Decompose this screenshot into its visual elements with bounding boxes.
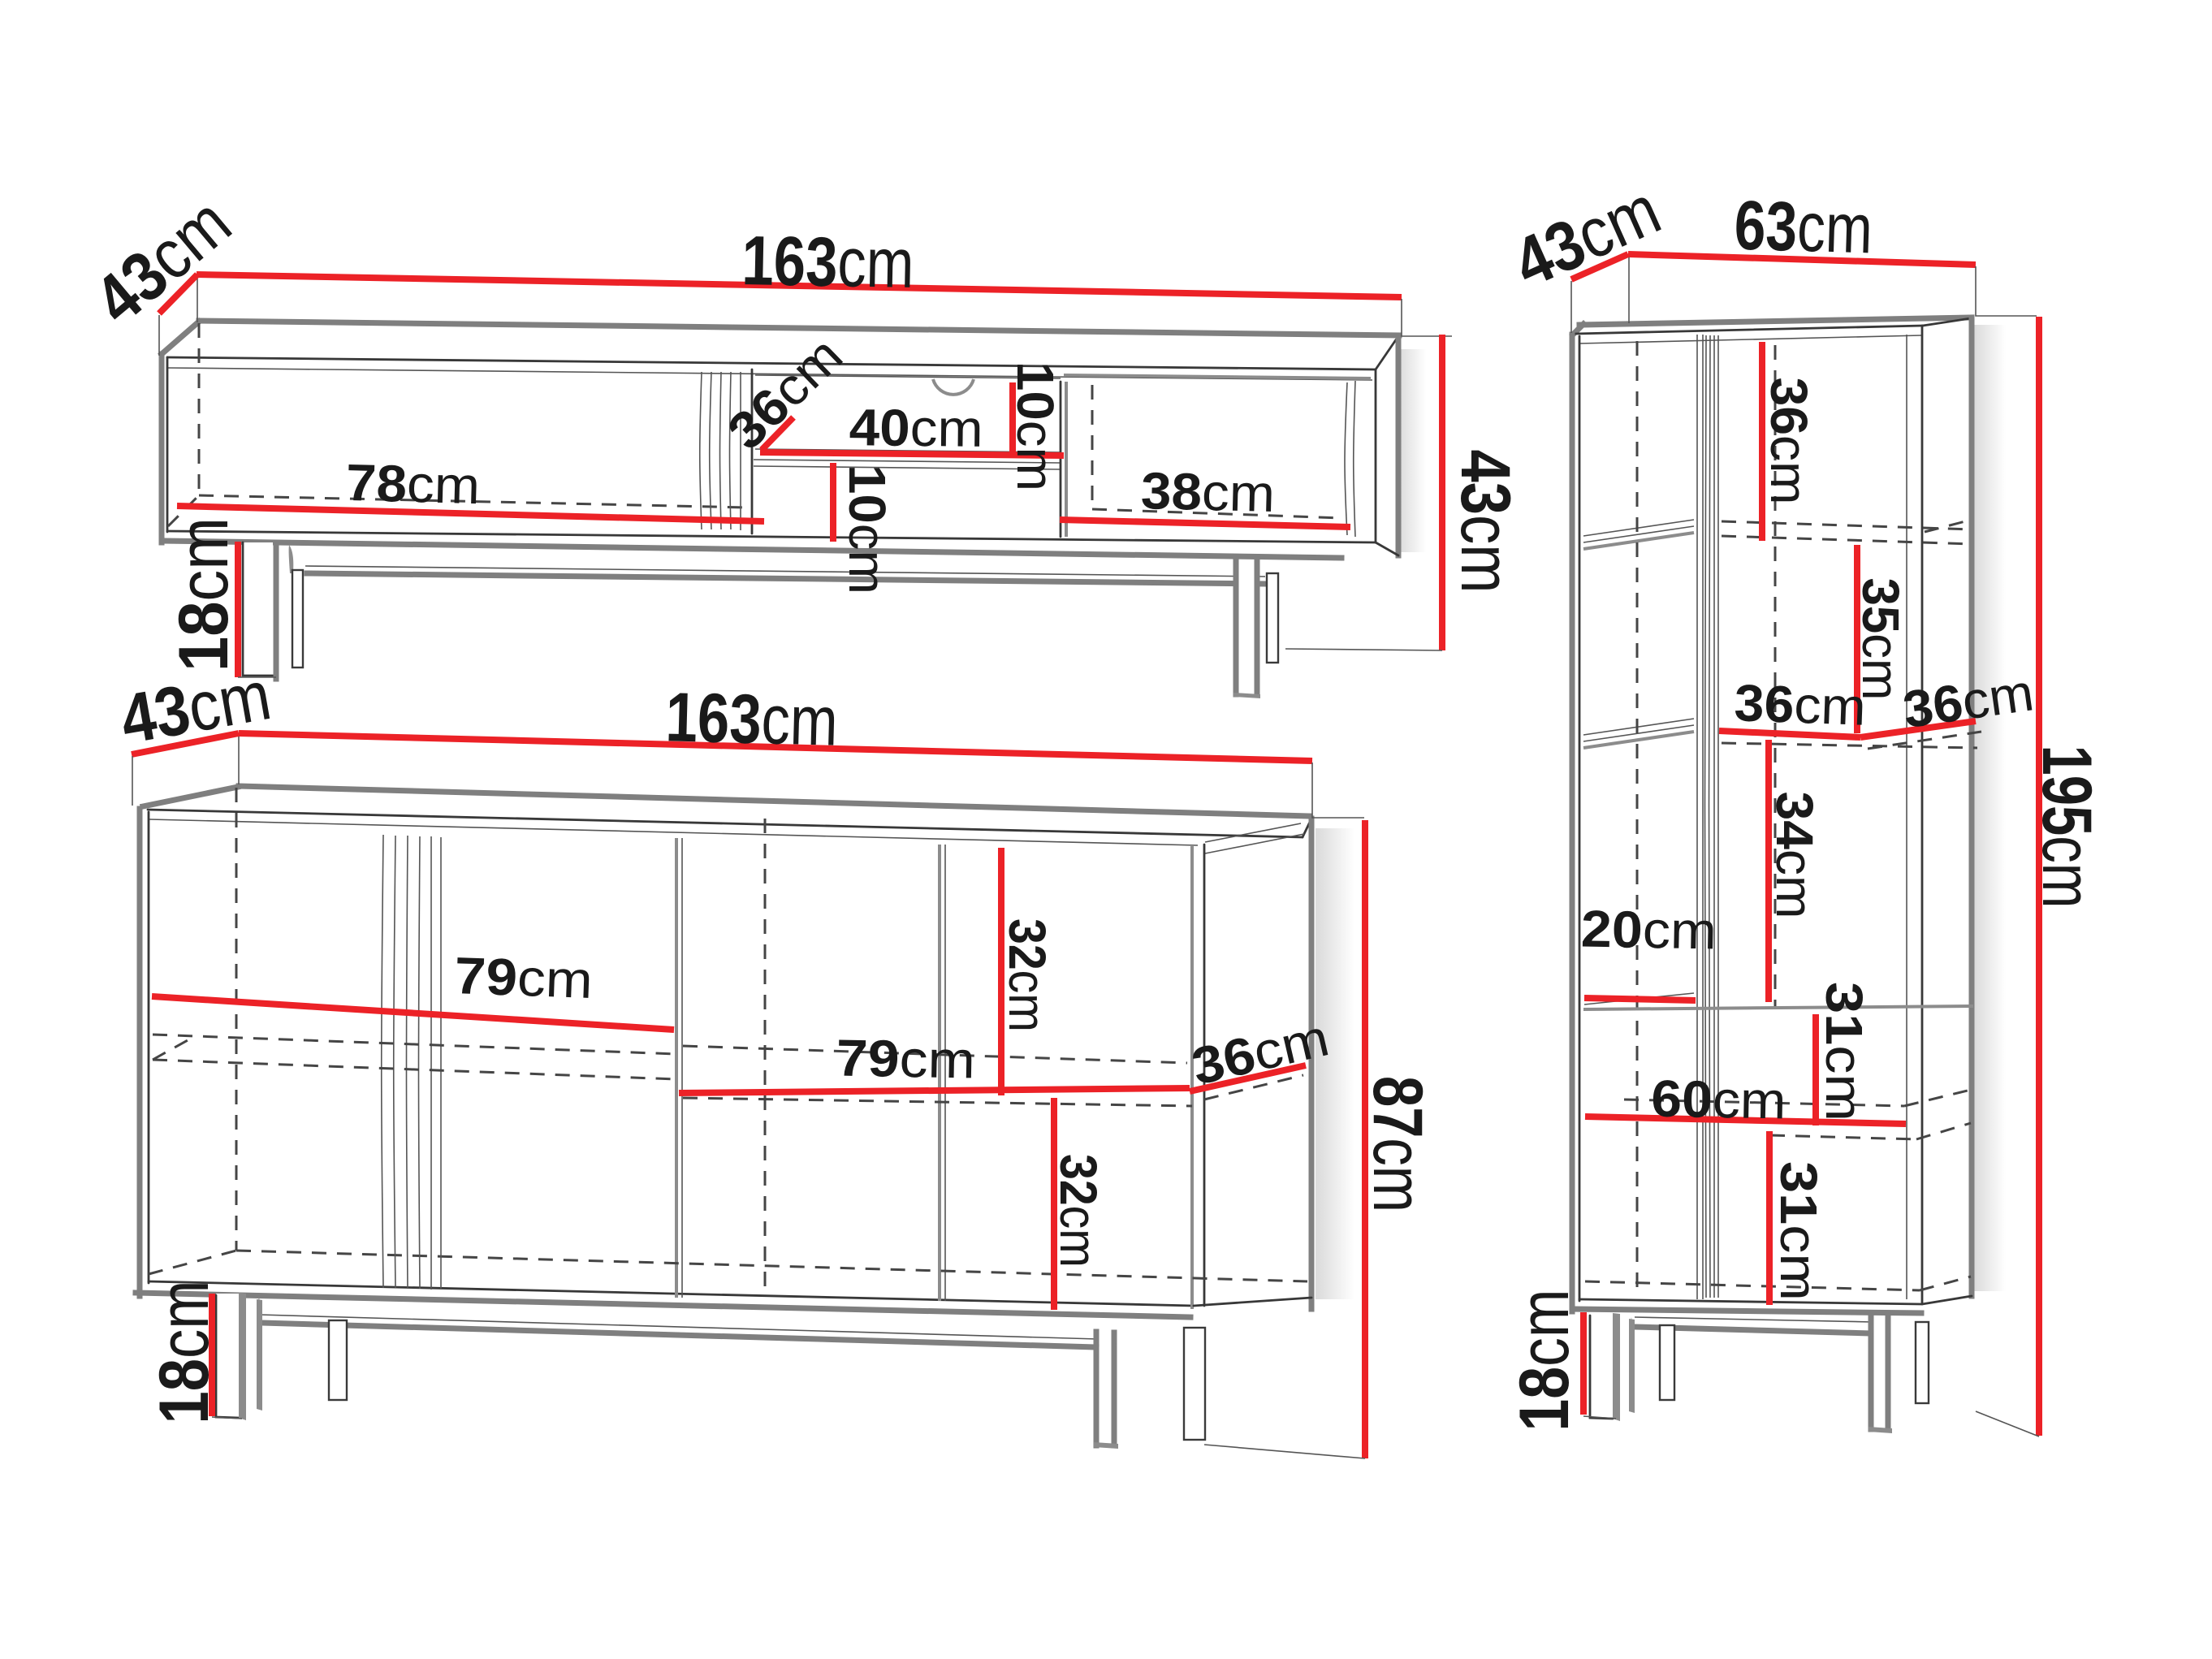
svg-text:38cm: 38cm — [1140, 461, 1276, 523]
svg-text:36cm: 36cm — [1760, 378, 1818, 505]
svg-text:34cm: 34cm — [1765, 792, 1824, 919]
svg-text:79cm: 79cm — [454, 946, 594, 1009]
svg-text:32cm: 32cm — [998, 918, 1056, 1032]
svg-text:87cm: 87cm — [1359, 1076, 1437, 1212]
svg-text:18cm: 18cm — [1506, 1290, 1583, 1432]
svg-text:10cm: 10cm — [838, 464, 896, 594]
svg-text:60cm: 60cm — [1651, 1069, 1786, 1130]
svg-text:36cm: 36cm — [1734, 673, 1867, 737]
svg-text:32cm: 32cm — [1049, 1154, 1108, 1268]
svg-text:20cm: 20cm — [1580, 900, 1717, 961]
svg-text:63cm: 63cm — [1733, 187, 1873, 269]
svg-text:163cm: 163cm — [665, 678, 839, 761]
svg-text:78cm: 78cm — [345, 453, 481, 515]
svg-text:43cm: 43cm — [1446, 450, 1524, 594]
svg-text:18cm: 18cm — [145, 1281, 223, 1424]
svg-text:31cm: 31cm — [1769, 1161, 1828, 1301]
svg-text:31cm: 31cm — [1815, 982, 1873, 1121]
svg-text:163cm: 163cm — [741, 222, 915, 303]
svg-text:40cm: 40cm — [849, 398, 983, 458]
svg-text:79cm: 79cm — [836, 1029, 975, 1090]
svg-text:10cm: 10cm — [1006, 361, 1065, 491]
svg-text:195cm: 195cm — [2028, 745, 2106, 909]
svg-text:18cm: 18cm — [165, 517, 243, 672]
